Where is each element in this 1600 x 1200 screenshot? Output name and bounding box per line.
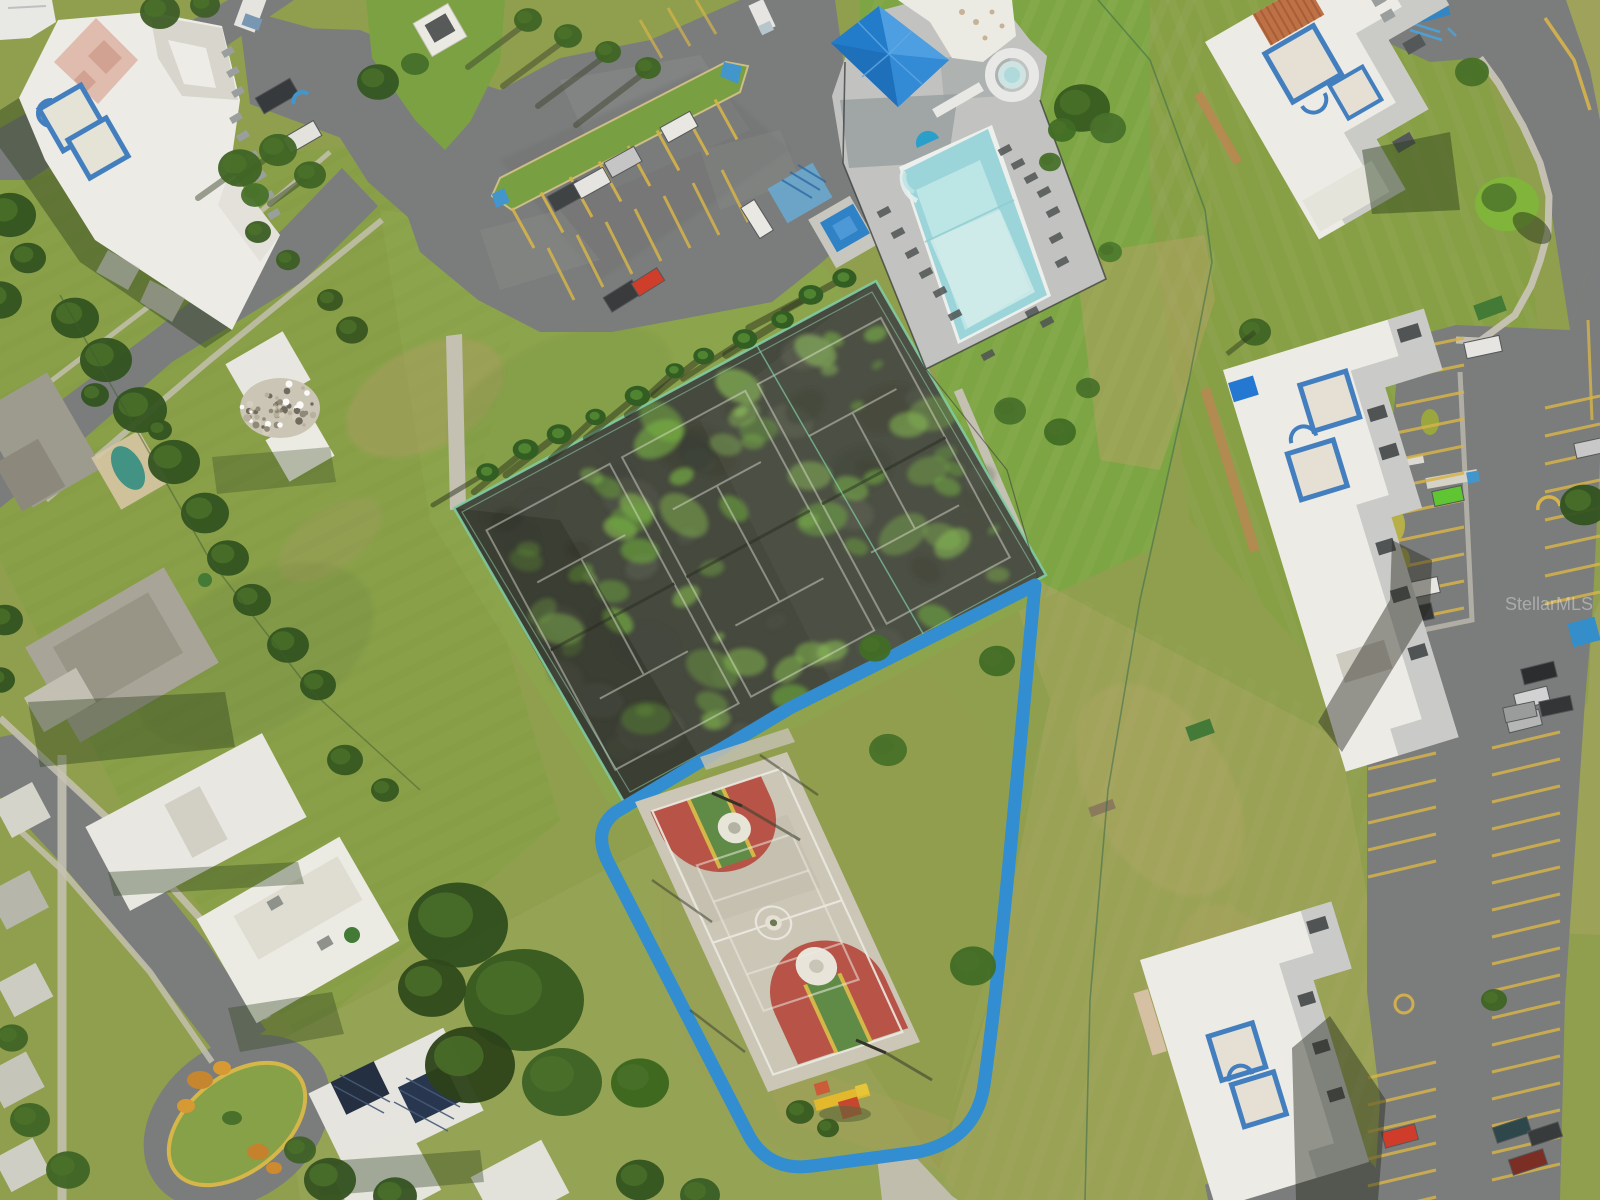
svg-text:StellarMLS: StellarMLS	[1505, 594, 1593, 614]
